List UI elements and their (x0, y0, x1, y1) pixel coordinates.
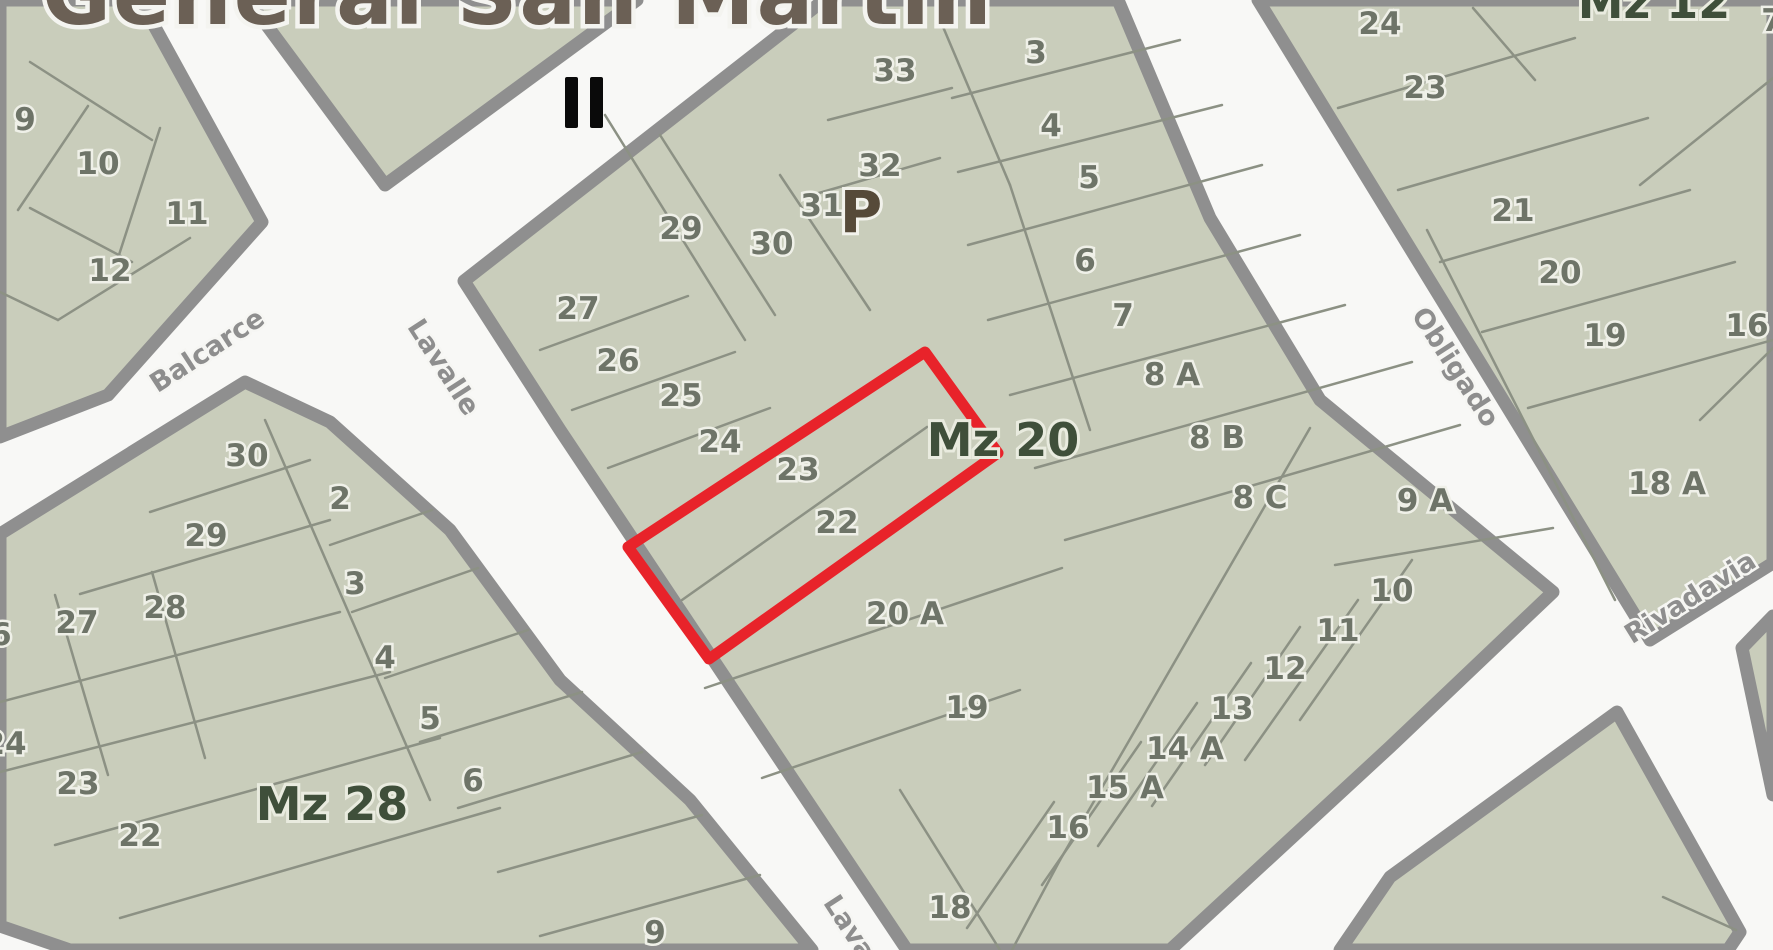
lot-number-5: 5 (1078, 160, 1100, 196)
lot-number-3: 3 (344, 566, 366, 602)
map-canvas: 91011123022932827264524623229Mz 28333432… (0, 0, 1773, 950)
plaza-p-marker: P (840, 178, 883, 246)
lot-number-20A: 20 A (866, 596, 944, 632)
lot-number-5: 5 (419, 701, 441, 737)
lot-number-4: 4 (1040, 108, 1062, 144)
lot-number-7: 7 (1112, 298, 1134, 334)
lot-number-2: 2 (329, 481, 351, 517)
street-label-lavalle-1: Lavalle (401, 314, 486, 422)
lot-number-6: 6 (462, 763, 484, 799)
lot-number-30: 30 (750, 226, 793, 262)
lot-number-19: 19 (945, 690, 988, 726)
lot-number-16: 16 (1725, 308, 1768, 344)
route-marker-ii-bar (565, 77, 578, 128)
lot-number-23: 23 (776, 452, 819, 488)
map-title: General San Martín (42, 0, 994, 44)
lot-number-24: 24 (698, 424, 741, 460)
lot-number-30: 30 (225, 438, 268, 474)
lot-number-24: 24 (0, 726, 27, 762)
block-label-Mz-28: Mz 28 (256, 777, 409, 831)
cadastral-map: 91011123022932827264524623229Mz 28333432… (0, 0, 1773, 950)
lot-number-9: 9 (14, 102, 36, 138)
lot-number-22: 22 (815, 505, 858, 541)
lot-number-12: 12 (1263, 651, 1306, 687)
lot-number-8C: 8 C (1232, 480, 1287, 516)
lot-number-18: 18 (928, 890, 971, 926)
lot-number-14A: 14 A (1146, 731, 1224, 767)
lot-number-9: 9 (644, 915, 666, 950)
lot-number-31: 31 (800, 188, 843, 224)
lot-number-26: 26 (596, 343, 639, 379)
lot-number-9A: 9 A (1397, 483, 1453, 519)
lot-number-24: 24 (1358, 6, 1401, 42)
lot-number-6: 6 (1074, 243, 1096, 279)
lot-number-27: 27 (556, 291, 599, 327)
block-southeast (1340, 712, 1740, 950)
lot-number-22: 22 (118, 818, 161, 854)
lot-number-7: 7 (1761, 3, 1773, 39)
block-label-Mz-12: Mz 12 (1578, 0, 1731, 29)
lot-number-23: 23 (1403, 70, 1446, 106)
lot-number-12: 12 (88, 253, 131, 289)
lot-number-11: 11 (1316, 613, 1359, 649)
lot-number-11: 11 (165, 196, 208, 232)
lot-number-28: 28 (143, 590, 186, 626)
block-east-sliver (1742, 616, 1773, 795)
lot-number-25: 25 (659, 378, 702, 414)
lot-number-33: 33 (873, 53, 916, 89)
lot-number-10: 10 (76, 146, 119, 182)
lot-number-13: 13 (1210, 691, 1253, 727)
lot-number-29: 29 (659, 211, 702, 247)
lot-number-15A: 15 A (1086, 770, 1164, 806)
lot-number-27: 27 (55, 605, 98, 641)
lot-number-23: 23 (56, 766, 99, 802)
lot-number-26: 26 (0, 617, 12, 653)
lot-number-16: 16 (1046, 810, 1089, 846)
lot-number-29: 29 (184, 518, 227, 554)
lot-number-20: 20 (1538, 255, 1581, 291)
lot-number-21: 21 (1491, 193, 1534, 229)
lot-number-3: 3 (1025, 35, 1047, 71)
block-label-Mz-20: Mz 20 (927, 413, 1080, 467)
lot-number-8B: 8 B (1189, 420, 1245, 456)
lot-number-19: 19 (1583, 318, 1626, 354)
lot-number-4: 4 (374, 640, 396, 676)
route-marker-ii-bar (590, 77, 603, 128)
lot-number-18A: 18 A (1628, 466, 1706, 502)
lot-number-8A: 8 A (1144, 357, 1200, 393)
lot-number-10: 10 (1370, 573, 1413, 609)
